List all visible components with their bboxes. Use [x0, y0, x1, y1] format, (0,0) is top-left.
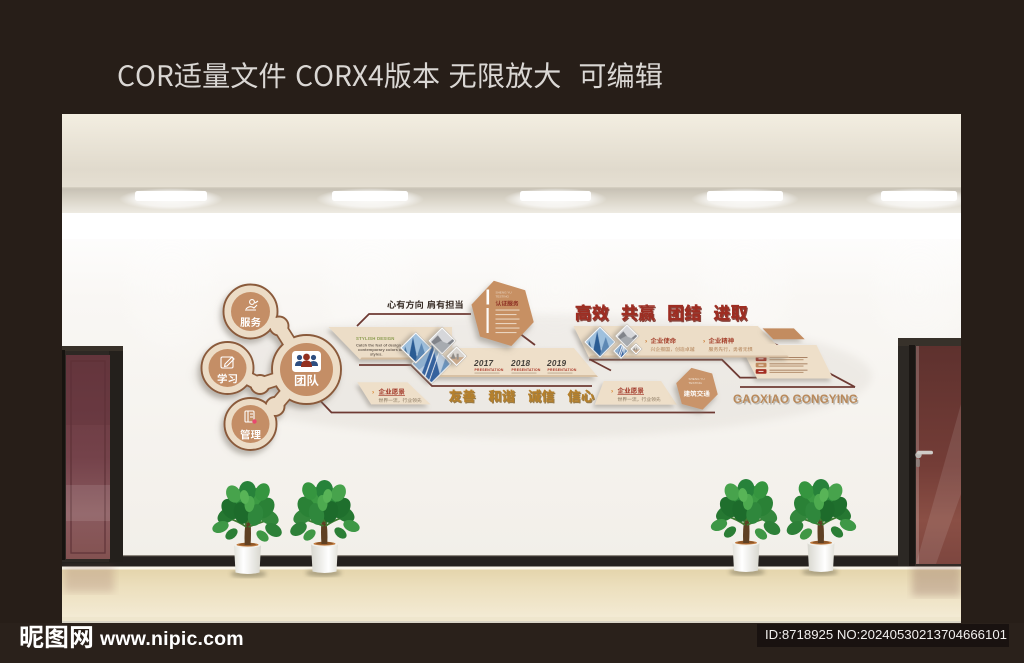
svg-text:GAOXIAO GONGYING: GAOXIAO GONGYING: [733, 393, 858, 406]
svg-text:2019: 2019: [546, 359, 567, 368]
svg-text:2017: 2017: [473, 359, 494, 368]
svg-text:PRESENTATION: PRESENTATION: [512, 368, 541, 372]
svg-text:2018: 2018: [510, 359, 531, 368]
svg-text:TESTING: TESTING: [496, 295, 510, 299]
svg-text:›: ›: [703, 338, 705, 345]
svg-text:›: ›: [645, 338, 647, 345]
svg-text:TESTING: TESTING: [689, 381, 703, 385]
svg-text:STYLISH DESIGN: STYLISH DESIGN: [356, 336, 395, 341]
svg-text:PRESENTATION: PRESENTATION: [548, 368, 577, 372]
svg-text:styles.: styles.: [370, 352, 382, 357]
svg-text:›: ›: [372, 389, 374, 396]
svg-text:www.nipic.com: www.nipic.com: [99, 628, 244, 650]
svg-text:PRESENTATION: PRESENTATION: [475, 368, 504, 372]
svg-text:›: ›: [611, 388, 613, 395]
